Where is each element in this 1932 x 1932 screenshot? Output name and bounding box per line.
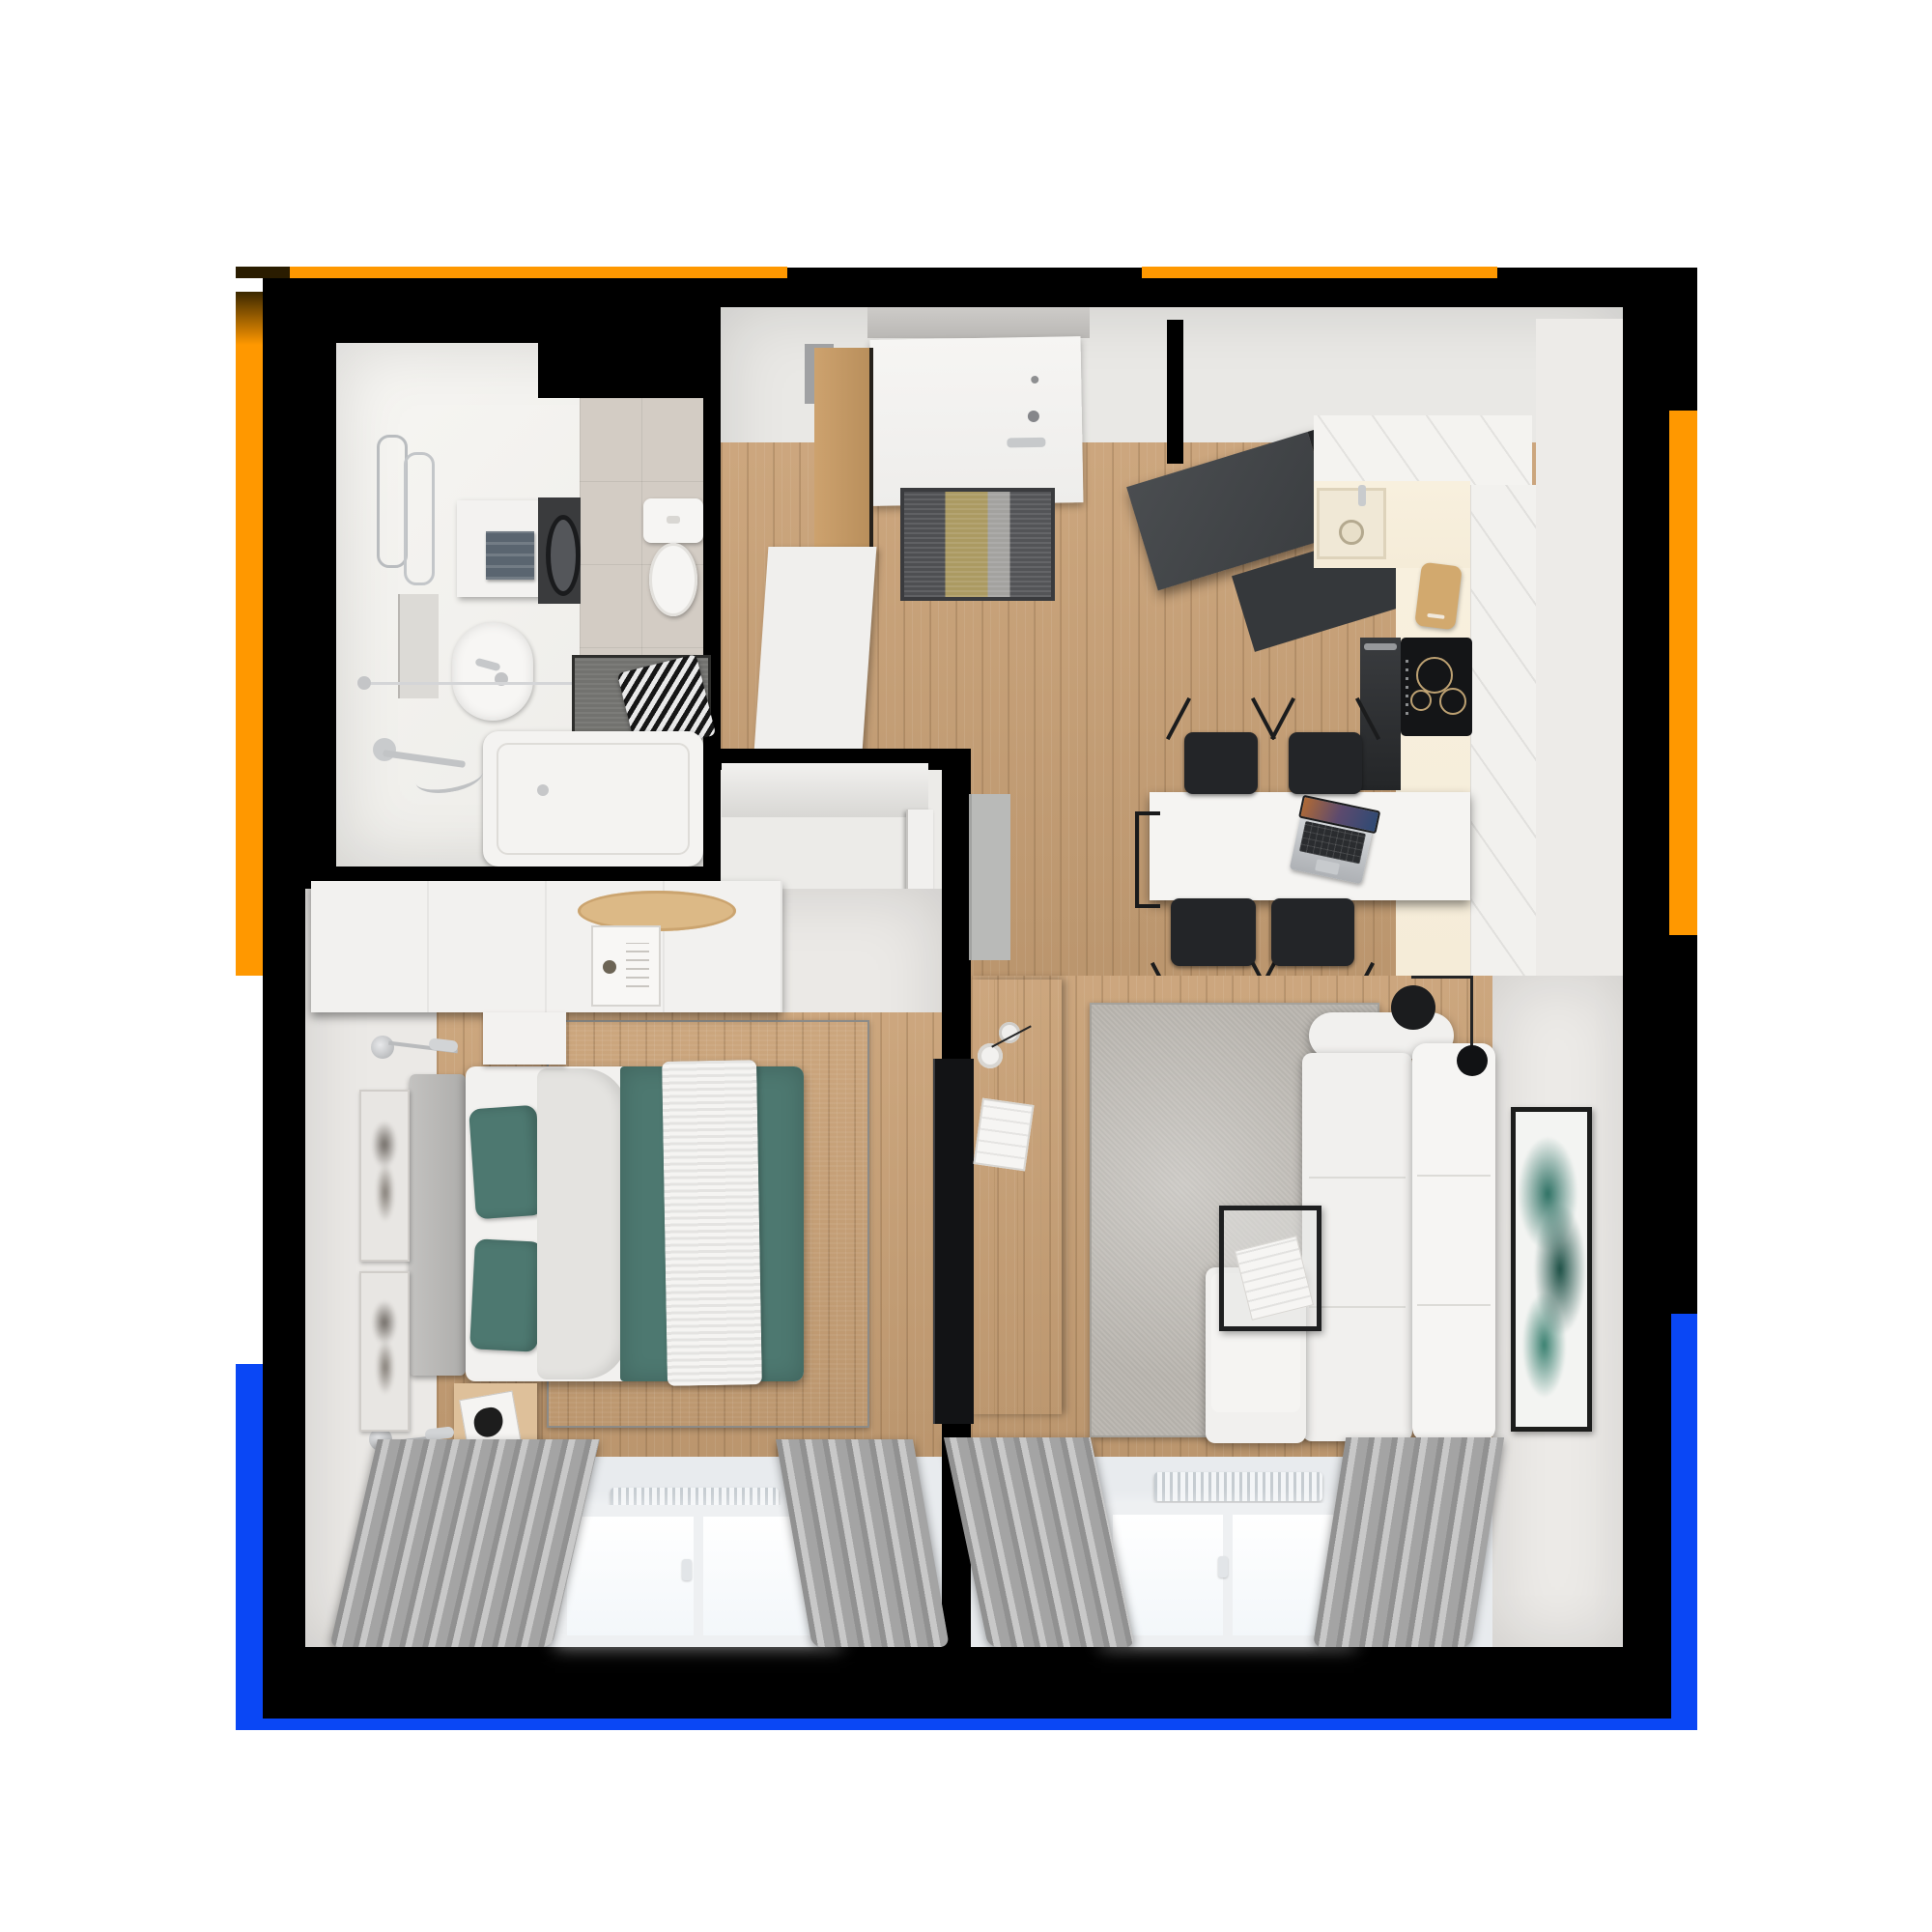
- wall-lamp-icon: [371, 1036, 394, 1059]
- laptop-trackpad-icon: [1315, 859, 1340, 875]
- window-handle-icon: [682, 1559, 692, 1580]
- burner-ring-icon: [1410, 690, 1432, 711]
- wire-chair-arm: [1135, 811, 1160, 908]
- bedroom-art-print: [359, 1090, 410, 1262]
- accent-left-orange-bar: [236, 292, 263, 976]
- accent-top-left-orange-line: [290, 267, 787, 278]
- bed-pillow-teal: [469, 1105, 544, 1220]
- door-lock-icon: [1028, 411, 1039, 422]
- cooktop-controls-icon: [1406, 655, 1408, 715]
- bed-pillow-teal: [469, 1238, 543, 1352]
- sofa-back-cushions: [1412, 1043, 1495, 1441]
- toilet-tank: [643, 498, 703, 543]
- kitchen-right-wall: [1536, 319, 1623, 976]
- door-handle-icon: [1007, 438, 1045, 448]
- cushion-seam-icon: [1309, 1306, 1406, 1308]
- sink-drain-icon: [1339, 520, 1364, 545]
- washer-door-icon: [546, 515, 581, 596]
- living-art-frame: [1511, 1107, 1592, 1432]
- oven-handle-icon: [1364, 643, 1397, 650]
- decor-text-lines-icon: [626, 943, 649, 987]
- bedroom-art-print: [359, 1271, 410, 1432]
- hall-shoe-cabinet: [754, 547, 877, 752]
- folded-towel: [486, 531, 534, 580]
- flush-button-icon: [667, 516, 680, 524]
- hall-kitchen-wall-stub: [1167, 320, 1183, 464]
- entry-door-lintel: [867, 307, 1090, 338]
- cushion-seam-icon: [1309, 1177, 1406, 1179]
- floor-lamp-disc-icon: [1391, 985, 1435, 1030]
- accent-right-orange-bar: [1669, 411, 1697, 935]
- floor-lamp-disc-icon: [1457, 1045, 1488, 1076]
- door-peephole-icon: [1031, 376, 1038, 384]
- cushion-seam-icon: [1417, 1304, 1491, 1306]
- floor-lamp-arm-icon: [1470, 976, 1473, 1051]
- bed-headboard: [410, 1074, 466, 1376]
- nightstand-white: [483, 1012, 566, 1065]
- magazine-art-icon: [471, 1406, 505, 1439]
- art-figure-icon: [365, 1286, 404, 1417]
- bathroom-wall-notch: [538, 343, 703, 398]
- toilet-bowl: [649, 543, 697, 616]
- entry-door: [870, 336, 1084, 506]
- window-mullion-icon: [694, 1517, 703, 1635]
- dining-chair: [1271, 898, 1354, 966]
- burner-ring-icon: [1439, 688, 1466, 715]
- bed-duvet-fold: [537, 1068, 628, 1379]
- towel-rail-icon: [404, 452, 435, 585]
- board-handle-slot-icon: [1427, 613, 1444, 619]
- bathtub: [483, 731, 703, 867]
- bathtub-drain-icon: [537, 784, 549, 796]
- induction-cooktop: [1401, 638, 1472, 736]
- green-abstract-art-icon: [1516, 1112, 1587, 1427]
- entry-doormat: [900, 488, 1055, 601]
- art-figure-icon: [365, 1105, 404, 1246]
- kitchen-upper-cabinets: [1314, 415, 1532, 485]
- kitchen-sink: [1317, 488, 1386, 559]
- washbasin: [452, 622, 533, 721]
- cushion-seam-icon: [1417, 1175, 1491, 1177]
- accent-top-right-orange-line: [1142, 267, 1497, 278]
- dining-chair: [1184, 732, 1258, 794]
- kitchen-right-cabinets: [1470, 485, 1537, 976]
- shower-rod-knob-icon: [357, 676, 371, 690]
- living-curtain-right: [1313, 1437, 1504, 1647]
- decor-plant-icon: [603, 960, 616, 974]
- kitchen-counter-right: [1396, 568, 1470, 976]
- bed-knit-throw: [662, 1060, 762, 1386]
- magazine-file: [973, 1098, 1034, 1172]
- coffee-cup-icon: [978, 1043, 1003, 1068]
- decor-box: [591, 925, 661, 1007]
- bathtub-inner-rim: [497, 743, 690, 855]
- washing-machine: [538, 497, 581, 604]
- sink-faucet-icon: [1358, 485, 1366, 506]
- accent-bottom-blue-line: [236, 1719, 1697, 1730]
- window-handle-icon: [1218, 1556, 1228, 1577]
- bedroom-door-header: [722, 763, 928, 817]
- living-radiator: [1154, 1472, 1322, 1501]
- accent-right-blue-bar: [1671, 1314, 1697, 1719]
- gray-cabinet: [969, 794, 1010, 960]
- floor-plan-stage: [0, 0, 1932, 1932]
- cutting-board: [1414, 562, 1463, 631]
- floor-lamp-arm-icon: [1411, 976, 1473, 979]
- dining-chair: [1289, 732, 1362, 794]
- dining-chair: [1171, 898, 1256, 966]
- accent-top-left-dark-stub: [236, 267, 292, 278]
- tv-screen: [933, 1059, 974, 1424]
- accent-left-blue-bar: [236, 1364, 263, 1719]
- hall-wardrobe-wood: [814, 348, 873, 553]
